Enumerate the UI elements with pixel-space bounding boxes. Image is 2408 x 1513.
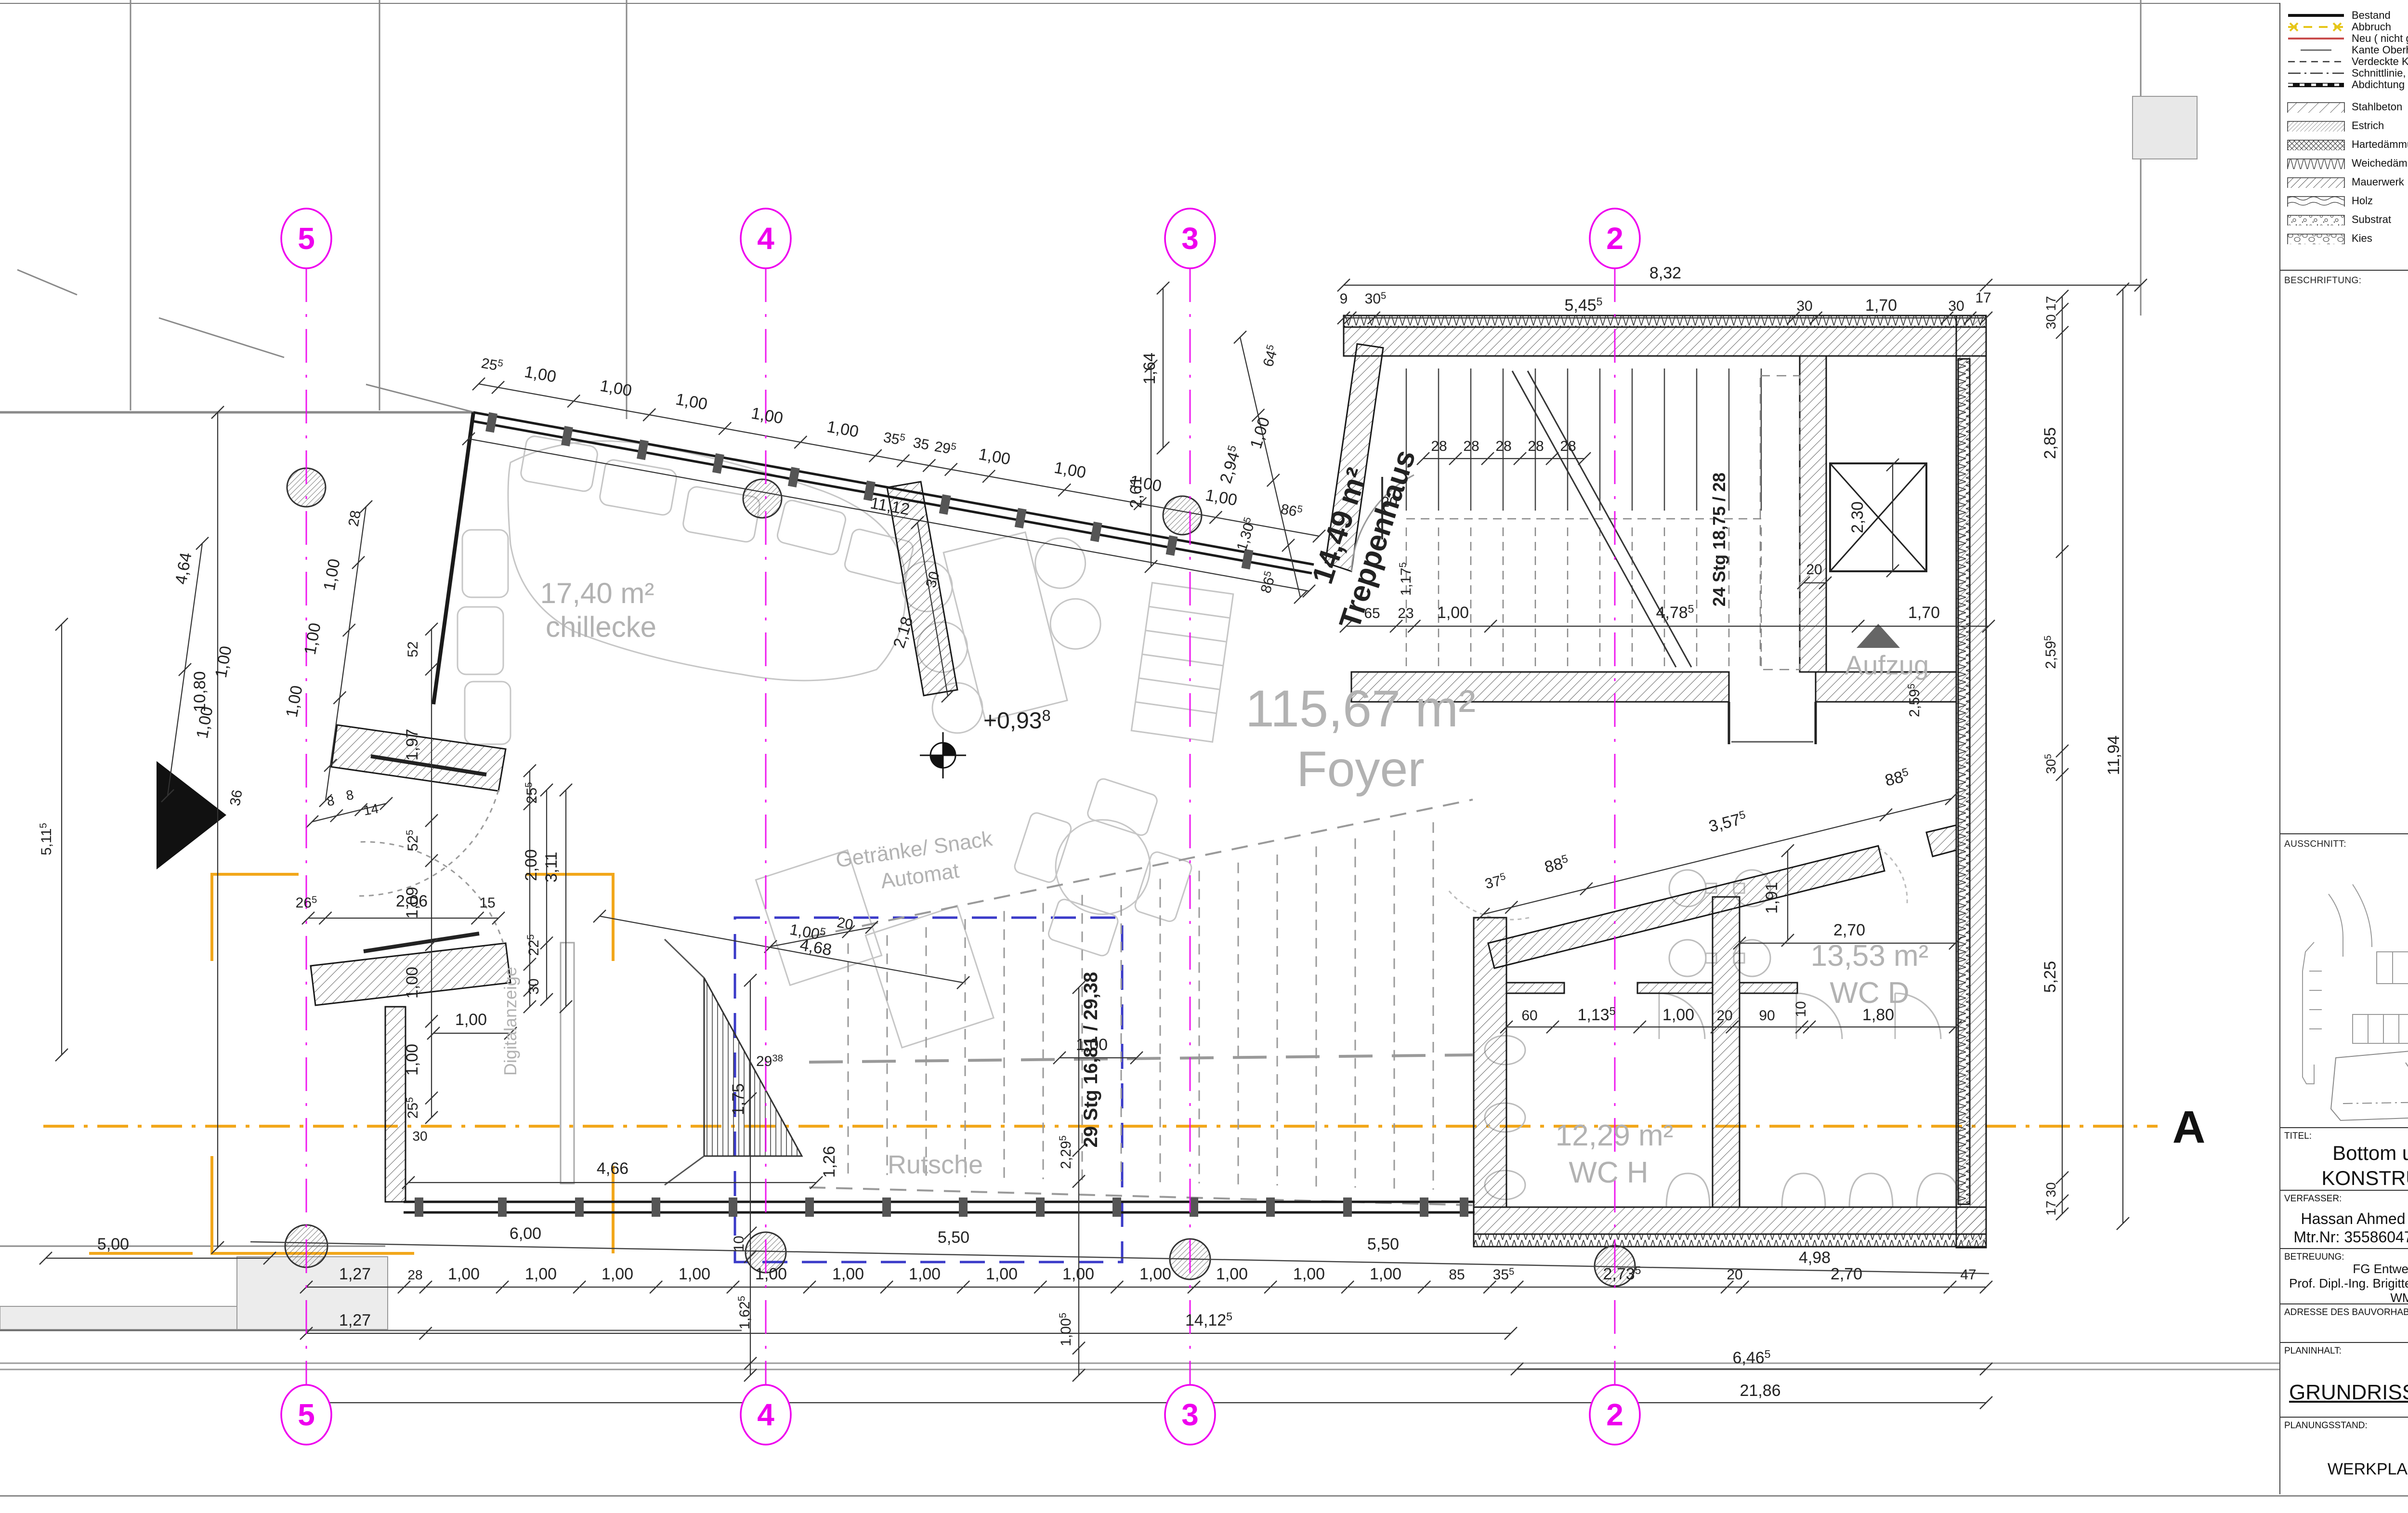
dimension-label: 885 [1883, 765, 1911, 790]
substrat-icon [2287, 214, 2345, 225]
legend-item-substrat: Substrat [2287, 210, 2408, 229]
room-label: Rutsche [888, 1150, 983, 1179]
dimension-label: +0,938 [983, 707, 1051, 734]
dimension-label: 10,80 [191, 671, 209, 712]
dimension-label: 375 [1483, 871, 1508, 892]
dimension-label: 2,295 [1058, 1135, 1074, 1169]
dimension-label: 1,00 [1204, 486, 1239, 510]
room-label: WC D [1830, 976, 1909, 1010]
dimension-label: 35 [912, 434, 930, 453]
section-line-A: A [43, 1102, 2205, 1153]
dimension-label: 36 [227, 789, 245, 807]
titel-label: TITEL: [2284, 1131, 2312, 1142]
adresse-label: ADRESSE DES BAUVORHABENS: [2284, 1307, 2408, 1318]
grid-axis-bubble: 4 [757, 1397, 774, 1432]
dimension-label: 90 [1759, 1008, 1775, 1024]
grid-axis-bubble: 3 [1181, 221, 1199, 256]
stand-value: WERKPLANUNG [2280, 1460, 2408, 1479]
dimension-label: 255 [523, 782, 540, 804]
dimension-label: 2,70 [1833, 921, 1865, 939]
dimension-label: 60 [1521, 1008, 1537, 1024]
dimension-label: 21,86 [1740, 1381, 1780, 1400]
dimension-label: 3,575 [1707, 808, 1748, 836]
grid-axis-bubble: 3 [1181, 1397, 1199, 1432]
mauerwerk-icon [2287, 176, 2345, 188]
glazed-facades [404, 412, 1475, 1217]
dimension-label: 6,00 [510, 1224, 541, 1243]
dimension-label: 1,00 [212, 645, 236, 679]
room-label: 115,67 m² [1245, 679, 1476, 737]
dimension-label: 11,94 [2105, 736, 2123, 776]
dimension-label: 8,32 [1649, 264, 1681, 282]
holz-icon [2287, 195, 2345, 207]
verfasser-label: VERFASSER: [2284, 1194, 2342, 1204]
dimension-label: 2,70 [1831, 1265, 1862, 1283]
dimension-label: 865 [1280, 501, 1304, 521]
dimension-label: 2,595 [2042, 635, 2059, 669]
drawing-sheet: A [0, 0, 2408, 1513]
grid-axis-bubble: 4 [757, 221, 774, 256]
dimension-label: 2938 [756, 1053, 783, 1069]
room-label: 13,53 m² [1811, 939, 1929, 973]
beschriftung-label: BESCHRIFTUNG: [2284, 276, 2361, 286]
neu-icon [2287, 33, 2345, 44]
dimension-label: 1,175 [1398, 562, 1414, 596]
room-label: chillecke [546, 611, 656, 643]
legend-item-holz: Holz [2287, 191, 2408, 210]
dimension-label: 30 [2043, 1182, 2058, 1197]
legend-item-mauerwerk: Mauerwerk [2287, 172, 2408, 191]
dimension-label: 28 [1495, 438, 1511, 454]
dimension-label: 295 [933, 438, 957, 458]
legend-item-neu: Neu ( nicht gezeigt, weil alles neu ist … [2287, 33, 2408, 44]
dimension-label: 1,00 [986, 1265, 1018, 1283]
dimension-label: 1,00 [1437, 604, 1469, 622]
legend: BestandAbbruchNeu ( nicht gezeigt, weil … [2287, 10, 2408, 248]
legend-line-items: BestandAbbruchNeu ( nicht gezeigt, weil … [2287, 10, 2408, 91]
dimension-label: 1,00 [1216, 1265, 1248, 1283]
right-panel: BestandAbbruchNeu ( nicht gezeigt, weil … [2279, 3, 2408, 1494]
dimension-label: 5,00 [97, 1235, 129, 1253]
dimension-label: 1,00 [455, 1011, 487, 1029]
dimension-label: 525 [405, 830, 421, 852]
dimension-label: 1,00 [1247, 415, 1274, 451]
dimension-label: 30 [2043, 314, 2058, 329]
dimension-label: 1,00 [1139, 1265, 1171, 1283]
room-label: 12,29 m² [1556, 1119, 1674, 1152]
dimension-label: 1,91 [1763, 882, 1781, 914]
dimension-label: 30 [412, 1129, 427, 1144]
hartedaemmung-icon [2287, 139, 2345, 150]
legend-item-kies: Kies [2287, 229, 2408, 248]
furniture [458, 435, 1233, 1184]
dimension-label: 255 [405, 1097, 421, 1119]
dimension-label: 4,98 [1799, 1249, 1831, 1267]
dimension-label: 2,18 [890, 615, 917, 650]
dimension-label: 14 [362, 801, 380, 818]
panel-divider [2280, 833, 2408, 834]
bestand-icon [2287, 10, 2345, 21]
legend-item-schnittlinie: Schnittlinie, Achse [2287, 67, 2408, 79]
dimension-label: 1,80 [1862, 1006, 1894, 1024]
grid-axis-bubble: 2 [1606, 1397, 1623, 1432]
dimension-label: 30 [526, 978, 542, 994]
abbruch-icon [2287, 21, 2345, 33]
dimension-label: 30 [1948, 298, 1964, 314]
dimension-label: 1,00 [1370, 1265, 1401, 1283]
legend-item-estrich: Estrich [2287, 116, 2408, 135]
dimension-label: 20 [1727, 1267, 1742, 1283]
betreuung-line2: Prof. Dipl.-Ing. Brigitte Häntsch / WM D… [2280, 1276, 2408, 1291]
stand-label: PLANUNGSSTAND: [2284, 1421, 2368, 1431]
dimension-label: 20 [1806, 562, 1822, 578]
room-label: 17,40 m² [540, 577, 654, 609]
stahlbeton-icon [2287, 101, 2345, 113]
estrich-icon [2287, 120, 2345, 132]
dimension-label: 24 Stg 18,75 / 28 [1709, 473, 1729, 606]
planinhalt-label: PLANINHALT: [2284, 1346, 2342, 1356]
dimension-label: 1,00 [523, 363, 558, 386]
legend-item-bestand: Bestand [2287, 10, 2408, 21]
title-line2: KONSTRUKTIVE VERTIEFUNG [2280, 1167, 2408, 1190]
planinhalt-value: GRUNDRISSSCHNITT [2289, 1381, 2408, 1405]
dimension-label: 28 [1560, 438, 1576, 454]
dimension-label: 5,115 [38, 823, 54, 855]
dimension-label: 1,00 [679, 1265, 710, 1283]
dimension-label: 1,005 [1058, 1313, 1074, 1346]
dimension-label: 2,30 [1848, 501, 1867, 533]
dimension-label: 14,125 [1185, 1310, 1232, 1329]
dimension-label: 23 [1398, 605, 1413, 621]
legend-item-stahlbeton: Stahlbeton [2287, 97, 2408, 116]
dimension-label: 28 [407, 1267, 422, 1282]
dimension-label: 28 [1431, 438, 1447, 454]
dimension-label: 5,455 [1564, 295, 1602, 315]
dimension-label: 6,465 [1732, 1348, 1770, 1367]
kante-oberhalb-icon [2287, 44, 2345, 56]
dimension-label: 1,97 [403, 729, 421, 761]
dimension-label: 1,00 [674, 390, 709, 414]
dimension-label: 645 [1260, 343, 1282, 369]
dimension-label: 17 [2043, 1200, 2058, 1215]
grid-axis-bubble: 5 [298, 1397, 315, 1432]
dimension-label: 255 [480, 355, 504, 375]
dimension-label: 1,00 [448, 1265, 480, 1283]
dimension-label: 29 Stg 16,81 / 29,38 [1080, 972, 1101, 1148]
betreuung-label: BETREUUNG: [2284, 1252, 2344, 1263]
dimension-label: 1,70 [1865, 296, 1897, 315]
dimension-label: 65 [1364, 605, 1380, 621]
dimension-label: 2,00 [522, 849, 540, 881]
dimension-label: 1,00 [909, 1265, 941, 1283]
legend-item-verdeckte-kante: Verdeckte Kante [2287, 56, 2408, 67]
dimension-label: 20 [1716, 1008, 1732, 1024]
dimension-label: 1,27 [339, 1311, 371, 1329]
dimension-label: 28 [1463, 438, 1479, 454]
dimension-label: 305 [1365, 290, 1387, 307]
legend-item-hartedaemmung: Hartedämmung [2287, 135, 2408, 154]
dimension-label: 5,50 [1367, 1235, 1399, 1253]
dimension-label: 2,06 [396, 892, 428, 910]
dimension-label: 1,00 [1076, 1036, 1108, 1054]
dimension-label: 355 [1493, 1266, 1515, 1283]
entrance-arrow [157, 761, 226, 869]
schnittlinie-icon [2287, 67, 2345, 79]
grid-axis-bubble: 2 [1606, 221, 1623, 256]
dimension-label: 15 [479, 895, 495, 911]
grid-axis-bubble: 5 [298, 221, 315, 256]
dimension-label: 865 [1257, 570, 1279, 595]
dimension-label: 1,00 [1062, 1265, 1094, 1283]
stairwell [1382, 368, 1926, 670]
dimension-label: 1,00 [301, 621, 325, 656]
dimension-label: 3,11 [542, 852, 561, 882]
dimension-label: 2,61 [1127, 476, 1145, 508]
dimension-label: 265 [296, 895, 317, 911]
dimension-label: 4,64 [172, 551, 196, 586]
weichedaemmung-icon [2287, 158, 2345, 169]
legend-item-abbruch: Abbruch [2287, 21, 2408, 33]
site-map-inset: 1 [2295, 855, 2408, 1125]
dimension-label: 1,00 [599, 377, 633, 400]
grid-axes: 55443322 [281, 209, 1640, 1445]
dimension-label: 5,50 [938, 1228, 969, 1247]
legend-item-abdichtung: Abdichtung [2287, 79, 2408, 91]
dimension-label: 52 [405, 641, 421, 657]
dimension-label: 1,00 [403, 1044, 421, 1076]
verfasser-mtr: Mtr.Nr: 35586047 [2280, 1228, 2408, 1246]
dimension-label: 1,00 [1293, 1265, 1325, 1283]
dimension-label: 2,735 [1603, 1264, 1641, 1283]
dimension-label: 1,00 [525, 1265, 557, 1283]
dimension-label: 4,785 [1656, 603, 1694, 622]
dimension-label: 20 [1381, 494, 1397, 510]
dimension-label: 1,00 [832, 1265, 864, 1283]
dimension-label: 1,00 [602, 1265, 633, 1283]
panel-divider [2280, 270, 2408, 271]
legend-item-kante-oberhalb: Kante Oberhalb [2287, 44, 2408, 56]
abdichtung-icon [2287, 79, 2345, 91]
dimension-label: 1,00 [825, 418, 860, 441]
dimension-label: 5,25 [2041, 961, 2059, 993]
dimension-label: 1,00 [755, 1265, 787, 1283]
blue-dashed-zone [735, 918, 1122, 1262]
marked-zone-outline [89, 874, 613, 1253]
verdeckte-kante-icon [2287, 56, 2345, 67]
dimension-label: 225 [525, 934, 542, 956]
dimension-label: 17 [2043, 296, 2058, 311]
dimension-label: 10 [1793, 1001, 1809, 1017]
dimension-label: 1,00 [403, 967, 421, 999]
dimension-label: 355 [882, 429, 906, 449]
dimension-label: 1,00 [320, 557, 344, 592]
dimension-label: 1,75 [729, 1083, 747, 1115]
dimension-label: 1,70 [1908, 604, 1940, 622]
dimension-label: 20 [836, 914, 854, 933]
dimension-label: 1,27 [339, 1265, 371, 1283]
kies-icon [2287, 233, 2345, 244]
dimension-label: 1,64 [1140, 353, 1159, 384]
legend-item-weichedaemmung: Weichedämmung [2287, 154, 2408, 172]
room-label: Foyer [1296, 741, 1425, 797]
dimension-label: 28 [345, 509, 364, 528]
dimension-label: 2,945 [1216, 444, 1245, 486]
dimension-label: 1,00 [1053, 459, 1087, 482]
dimension-label: 8 [345, 787, 355, 803]
dimension-label: 47 [1960, 1267, 1976, 1283]
dimension-label: 1,00 [750, 404, 785, 428]
room-label: Aufzug [1845, 650, 1929, 680]
level-marker [920, 732, 966, 778]
legend-hatch-items: StahlbetonEstrichHartedämmungWeichedämmu… [2287, 97, 2408, 248]
elevator-direction-arrow [1857, 624, 1900, 648]
dimension-label: 30 [1796, 298, 1812, 314]
dimension-label: 1,26 [820, 1146, 838, 1178]
dimension-label: 85 [1449, 1267, 1465, 1283]
room-label: Digitalanzeige [500, 967, 520, 1076]
room-label: WC H [1569, 1156, 1648, 1189]
floor-plan: A [0, 0, 2279, 1513]
dimension-label: 2,85 [2041, 427, 2059, 459]
verfasser-name: Hassan Ahmed [2280, 1210, 2408, 1228]
dimension-label: 9 [1340, 291, 1348, 307]
dimension-label: 4,66 [597, 1159, 628, 1178]
dimension-label: 8 [326, 793, 336, 809]
ausschnitt-label: AUSSCHNITT: [2284, 839, 2346, 850]
betreuung-line1: FG Entwerfen und Baukonstruktion EBK / [2280, 1262, 2408, 1276]
dimension-label: 1,00 [283, 684, 306, 719]
section-mark-label: A [2172, 1102, 2206, 1153]
dimension-label: 1,00 [977, 445, 1012, 469]
dimension-label: 28 [1528, 438, 1544, 454]
dimension-label: 885 [1543, 852, 1571, 877]
dimension-label: 17 [1975, 290, 1991, 306]
dimension-label: 1,00 [1662, 1006, 1694, 1024]
dimension-label: 1,135 [1577, 1005, 1615, 1024]
dimension-label: 10 [731, 1236, 747, 1251]
